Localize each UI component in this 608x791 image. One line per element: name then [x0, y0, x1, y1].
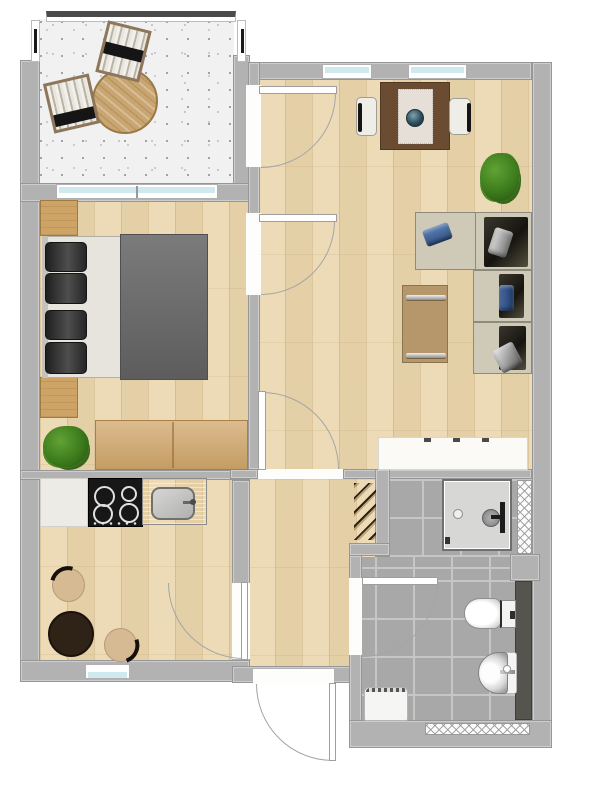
washbasin-faucet-knob — [503, 665, 511, 673]
sideboard — [378, 437, 528, 470]
nightstand-top — [40, 200, 78, 236]
apartment-floor-plan — [0, 0, 608, 791]
coffee-table-bar — [406, 353, 446, 358]
living-hall-door-leaf — [258, 391, 266, 470]
wall-corner-block — [510, 554, 540, 581]
dresser — [95, 420, 248, 470]
wall-living-bath-top — [343, 469, 532, 479]
lounge-chair-cushion-band — [53, 106, 96, 127]
living-window-1 — [322, 64, 372, 79]
toilet-flush — [510, 611, 515, 619]
chair-backrest — [467, 103, 471, 132]
coat-hooks — [354, 483, 376, 540]
coffee-table-bar — [406, 295, 446, 300]
living-window-2 — [408, 64, 467, 79]
washing-machine-controls — [366, 688, 407, 692]
bed-pillow — [45, 273, 87, 304]
shower — [442, 479, 512, 551]
kitchen-window — [85, 664, 130, 679]
dresser-seam — [172, 422, 174, 468]
dining-table — [380, 82, 450, 150]
window-glass — [411, 67, 464, 73]
wall-living-top — [250, 62, 532, 80]
sofa-pillow-blue — [499, 285, 514, 311]
railing-post — [241, 29, 244, 53]
balcony-railing-right — [237, 20, 246, 62]
kitchen-door-leaf — [241, 582, 248, 660]
coffee-table — [402, 285, 448, 363]
sideboard-knob — [424, 438, 431, 442]
decor-bowl — [406, 109, 424, 127]
wall-left-outer — [20, 60, 40, 682]
cooktop — [88, 478, 143, 527]
balcony-door-leaf — [259, 86, 337, 94]
bathroom-radiator-bottom — [425, 723, 530, 735]
burner — [121, 486, 137, 502]
wall-living-hall-left — [230, 469, 258, 479]
living-hall-door-opening — [258, 469, 343, 479]
window-mullion — [136, 186, 138, 198]
bed-pillow — [45, 310, 87, 340]
burner — [119, 503, 139, 523]
toilet-tank — [500, 600, 516, 628]
bedroom-door-opening — [246, 213, 261, 295]
sideboard-knob — [453, 438, 460, 442]
chair-backrest — [358, 103, 362, 132]
window-glass — [88, 672, 127, 678]
sofa-section-top — [415, 212, 476, 270]
washing-machine — [364, 687, 408, 721]
kitchen-chair-2 — [104, 628, 137, 662]
bathroom-door-leaf — [362, 577, 438, 585]
balcony-railing-top — [46, 11, 236, 22]
nightstand-bottom — [40, 377, 78, 418]
sideboard-knob — [482, 438, 489, 442]
kitchen-round-table — [48, 611, 94, 657]
shower-door-pivot — [445, 537, 450, 544]
entrance-door-opening — [253, 669, 334, 683]
bed-blanket — [120, 234, 208, 380]
lounge-chair-cushion-band — [103, 41, 144, 62]
kitchen-counter — [40, 478, 88, 527]
bed-pillow — [45, 342, 87, 374]
shower-drain — [453, 509, 463, 519]
bathroom-door-opening — [349, 578, 362, 655]
bedroom-window — [56, 184, 218, 199]
shower-arm-horizontal — [491, 515, 503, 519]
dining-chair-left — [356, 97, 377, 136]
sink-faucet-base — [190, 499, 196, 505]
kitchen-chair-1 — [52, 568, 85, 602]
window-glass — [325, 67, 369, 73]
railing-post — [34, 29, 37, 53]
bathroom-radiator-right — [517, 480, 532, 554]
wall-kitchen-bottom — [20, 660, 250, 682]
cooktop-knobs — [91, 521, 141, 526]
toilet-bowl — [464, 598, 502, 629]
wall-right-outer — [532, 62, 552, 748]
bedroom-door-leaf — [259, 214, 337, 222]
balcony-door-opening — [246, 85, 261, 167]
bathroom-dark-counter — [515, 581, 532, 720]
balcony-railing-left — [31, 20, 40, 62]
entrance-door-leaf — [329, 683, 336, 761]
kitchen-sink-unit — [142, 478, 207, 525]
dining-chair-right — [449, 98, 471, 135]
bed-pillow — [45, 242, 87, 272]
